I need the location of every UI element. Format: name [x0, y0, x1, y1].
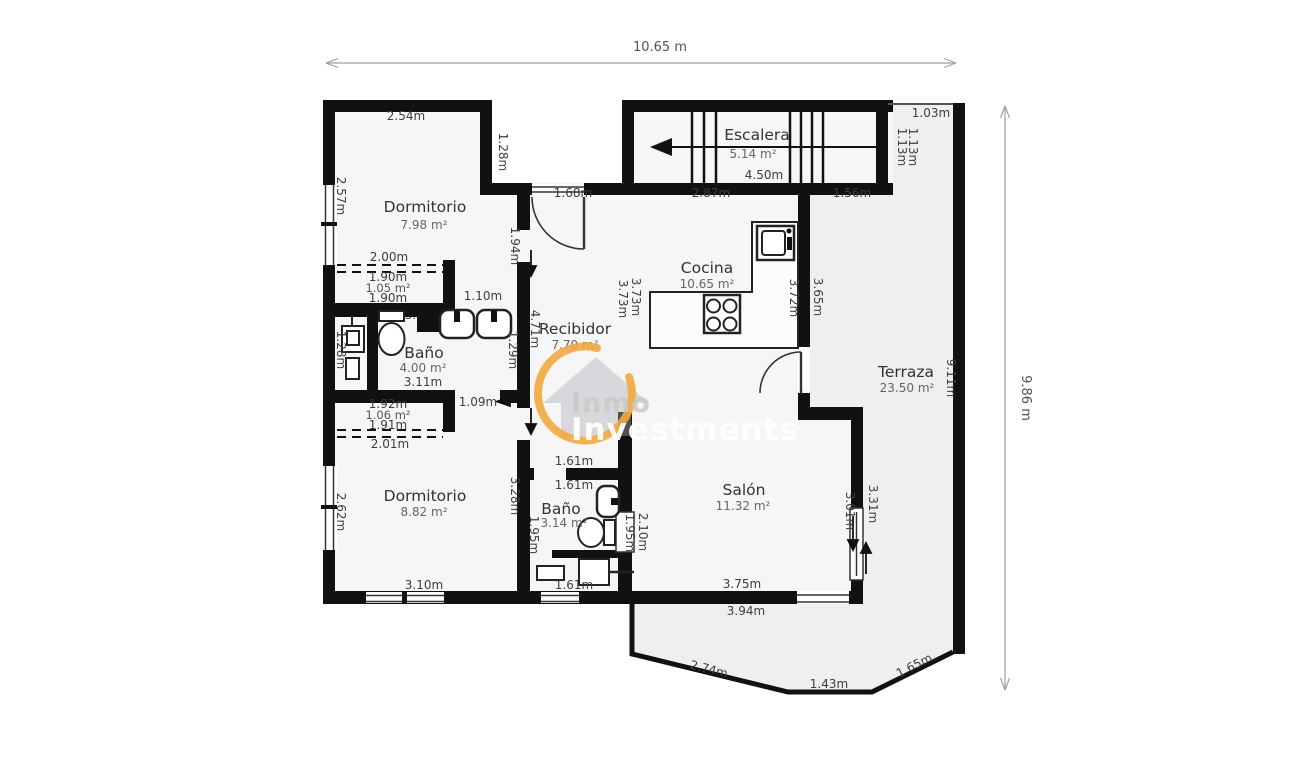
dim-dorm2-right: 3.28m [508, 477, 522, 515]
dim-dorm2-door: 1.09m [459, 395, 497, 409]
dim-salon-right: 3.31m [866, 485, 880, 523]
dim-armario2-bottom: 2.01m [371, 437, 409, 451]
room-recibidor-name: Recibidor [539, 320, 612, 338]
dim-salon-left: 2.10m [636, 513, 650, 551]
floor-plan-page: 3.10m [0, 0, 1290, 780]
dim-banyo2-left: 1.95m [527, 516, 541, 554]
dim-terraza-bottom: 1.43m [810, 677, 848, 691]
overall-width-line [326, 59, 956, 68]
room-terraza-name: Terraza [877, 363, 934, 381]
dim-dorm2-bottom: 3.10m [405, 578, 443, 592]
dim-armario2-w: 1.91m [369, 418, 407, 432]
room-dormitorio2-name: Dormitorio [384, 487, 467, 505]
dim-banyo2-right: 1.95m [623, 514, 637, 552]
room-banyo2: Baño 3.14 m² [540, 500, 587, 530]
stove-icon [704, 295, 740, 333]
dim-cocina-right: 3.65m [811, 278, 825, 316]
room-salon-area: 11.32 m² [716, 499, 771, 513]
room-dormitorio2-area: 8.82 m² [400, 505, 447, 519]
vanity-sink2-icon [477, 310, 511, 338]
dim-dorm1-left: 2.57m [334, 177, 348, 215]
room-escalera-area: 5.14 m² [729, 147, 776, 161]
dim-recibidor-left: 4.71m [528, 310, 542, 348]
room-terraza-area: 23.50 m² [880, 381, 935, 395]
dim-salon-bottom: 3.75m [723, 577, 761, 591]
dim-salon-door: 3.01m [843, 492, 857, 530]
window-banyo2-bottom [541, 592, 579, 603]
banyo2-sink-icon [597, 486, 619, 517]
dim-notch-b: 1.13m [906, 128, 920, 166]
overall-width-label: 10.65 m [633, 40, 687, 55]
room-banyo1-name: Baño [404, 344, 443, 362]
room-salon: Salón 11.32 m² [716, 481, 771, 513]
dim-terraza-right: 9.11m [944, 359, 958, 397]
overall-height-label: 9.86 m [1018, 375, 1033, 421]
room-dormitorio1-area: 7.98 m² [400, 218, 447, 232]
room-banyo1: Baño 4.00 m² [399, 344, 446, 375]
dim-cocina-top: 2.87m [692, 186, 730, 200]
room-cocina-area: 10.65 m² [680, 277, 735, 291]
dim-salon-bottom-out: 3.94m [727, 604, 765, 618]
toilet1-icon [379, 311, 405, 355]
floor-plan-svg: 3.10m [0, 0, 1290, 780]
dim-banyo2-bottom: 1.61m [555, 578, 593, 592]
shower-unit-icon [417, 311, 440, 332]
dim-recibidor-a: 3.73m [616, 280, 630, 318]
dim-recibidor-bottom: 1.61m [555, 454, 593, 468]
dim-dorm1-step: 1.28m [496, 133, 510, 171]
dim-recibidor-b: 3.73m [629, 278, 643, 316]
room-terraza: Terraza 23.50 m² [877, 363, 935, 395]
room-cocina-name: Cocina [681, 259, 733, 277]
dim-notch-top: 1.03m [912, 106, 950, 120]
window-dorm2-bottom [366, 592, 444, 603]
dim-banyo1-right: 1.29m [506, 331, 520, 369]
dim-dorm1-top: 2.54m [387, 109, 425, 123]
dim-escalera-len: 4.50m [745, 168, 783, 182]
dim-banyo1-left: 1.28m [334, 331, 348, 369]
room-cocina: Cocina 10.65 m² [680, 259, 735, 291]
room-salon-name: Salón [723, 481, 766, 499]
dim-cocina-left: 3.72m [787, 279, 801, 317]
watermark-brand-line2: Investments [571, 412, 799, 448]
oven-icon [757, 226, 794, 260]
room-dormitorio1-name: Dormitorio [384, 198, 467, 216]
dim-terraza-top: 1.56m [833, 186, 871, 200]
dim-dorm2-left: 2.62m [334, 493, 348, 531]
dim-dorm1-right: 1.94m [508, 227, 522, 265]
dim-banyo1-bottom: 3.11m [404, 375, 442, 389]
room-banyo1-area: 4.00 m² [399, 361, 446, 375]
vanity-sink1-icon [440, 310, 474, 338]
dim-banyo1-door: 1.10m [464, 289, 502, 303]
dim-armario1-w2: 1.90m [369, 291, 407, 305]
dim-banyo2-top: 1.61m [555, 478, 593, 492]
room-banyo2-area: 3.14 m² [540, 516, 587, 530]
window-salon-bottom [797, 591, 849, 604]
dim-entry-door: 1.68m [554, 186, 592, 200]
dim-armario1-top: 2.00m [370, 250, 408, 264]
overall-height-line [1001, 106, 1010, 690]
room-escalera-name: Escalera [724, 126, 790, 144]
